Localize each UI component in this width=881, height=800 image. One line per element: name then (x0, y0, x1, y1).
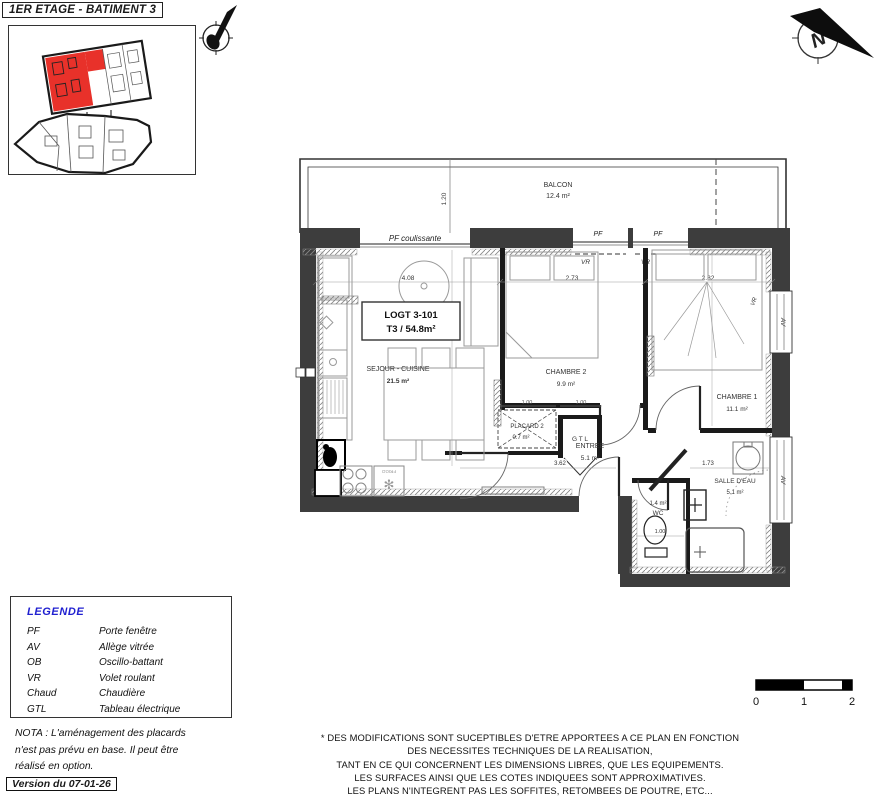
dim-chambre2: 2.73 (566, 275, 579, 282)
scale-bar: 0 1 2 (748, 674, 860, 710)
entree-label: ENTREE (576, 443, 605, 450)
nota-line: NOTA : L'aménagement des placards (15, 726, 230, 743)
floor-plan-page: { "header": { "title": "1ER ETAGE - BATI… (0, 0, 881, 800)
scale-1: 1 (801, 696, 807, 708)
legend-label: Oscillo-battant (99, 657, 163, 668)
dim-balcon-depth: 1.20 (441, 192, 448, 205)
sofa (464, 258, 498, 346)
av1-label: AV (779, 317, 786, 327)
chambre1-label: CHAMBRE 1 (717, 394, 758, 401)
dining-table (384, 348, 484, 460)
unit-type-area: T3 / 54.8m² (386, 324, 435, 335)
washbasin (733, 442, 763, 474)
dim-sejour: 4.08 (402, 275, 415, 282)
frigo-label: FRIGO (381, 469, 396, 474)
kitchen-unit (315, 470, 341, 496)
dim-wc: 1.00 (655, 529, 666, 535)
nota-line: réalisé en option. (15, 759, 230, 776)
legend-row-pf: PF Porte fenêtre (27, 626, 231, 637)
entree-area: 5.1 m² (581, 455, 600, 462)
placard-label: PLACARD 2 (510, 424, 544, 430)
legend: LEGENDE PF Porte fenêtre AV Allège vitré… (10, 596, 232, 718)
disclaimer-line: DES NECESSITES TECHNIQUES DE LA REALISAT… (250, 744, 810, 757)
legend-abbr: PF (27, 626, 99, 637)
minimap-drawing (9, 26, 195, 174)
disclaimer-line: TANT EN CE QUI CONCERNENT LES DIMENSIONS… (250, 758, 810, 771)
svg-text:✻: ✻ (384, 477, 395, 492)
salle-eau-label: SALLE D'EAU (714, 478, 756, 485)
gtl-label: G T L (572, 436, 588, 443)
small-compass-icon (192, 0, 248, 58)
pf2-label: PF (654, 231, 664, 238)
legend-abbr: GTL (27, 704, 99, 715)
wc-label: WC (653, 510, 664, 517)
legend-abbr: Chaud (27, 688, 99, 699)
legend-abbr: OB (27, 657, 99, 668)
north-arrow-icon: N (786, 2, 878, 70)
sejour-label: SEJOUR - CUISINE (366, 366, 429, 373)
disclaimer-line: LES PLANS N'INTEGRENT PAS LES SOFFITES, … (250, 784, 810, 797)
shower (686, 528, 744, 572)
unit-label-box: LOGT 3-101 T3 / 54.8m² (362, 302, 460, 340)
nota-note: NOTA : L'aménagement des placards n'est … (15, 726, 230, 776)
minimap-lower-building (15, 114, 151, 173)
window-pf-coulissante: PF coulissante (360, 234, 470, 247)
nota-line: n'est pas prévu en base. Il peut être (15, 743, 230, 760)
page-title: 1ER ETAGE - BATIMENT 3 (2, 2, 163, 18)
scale-2: 2 (849, 696, 855, 708)
legend-row-gtl: GTL Tableau électrique (27, 704, 231, 715)
sejour-area: 21.5 m² (387, 378, 410, 385)
legend-row-chaud: Chaud Chaudière (27, 688, 231, 699)
balcony: BALCON 12.4 m² 1.20 (300, 159, 786, 233)
salle-eau-area: 5.1 m² (726, 490, 743, 496)
window-pf-2: PF VR (633, 231, 688, 266)
legend-abbr: VR (27, 673, 99, 684)
minimap-highlighted-unit (45, 52, 93, 112)
window-av-1: AV VR (750, 291, 792, 353)
legend-abbr: AV (27, 642, 99, 653)
disclaimer: * DES MODIFICATIONS SONT SUCEPTIBLES D'E… (250, 731, 810, 798)
bed-chambre2 (506, 252, 598, 358)
legend-label: Volet roulant (99, 673, 155, 684)
dim-entree: 3.62 (554, 461, 566, 467)
disclaimer-line: * DES MODIFICATIONS SONT SUCEPTIBLES D'E… (250, 731, 810, 744)
legend-label: Chaudière (99, 688, 145, 699)
bed-chambre1 (652, 250, 762, 370)
legend-label: Allège vitrée (99, 642, 154, 653)
legend-label: Porte fenêtre (99, 626, 157, 637)
vr1-label: VR (581, 259, 590, 266)
dim-placard: 1.00 (522, 400, 533, 406)
pf-coulissante-label: PF coulissante (389, 234, 442, 243)
legend-row-av: AV Allège vitrée (27, 642, 231, 653)
wc-area: 1.4 m² (649, 501, 666, 507)
minimap-upper-building (43, 41, 151, 114)
chambre1-area: 11.1 m² (726, 406, 748, 413)
window-pf-1: PF VR (573, 231, 628, 266)
balcon-label: BALCON (544, 182, 573, 189)
legend-label: Tableau électrique (99, 704, 180, 715)
legend-row-vr: VR Volet roulant (27, 673, 231, 684)
legend-title: LEGENDE (27, 606, 231, 618)
av2-label: AV (779, 475, 786, 485)
placard-area: 0.7 m² (512, 435, 529, 441)
unit-number: LOGT 3-101 (384, 310, 438, 321)
toilet (644, 516, 667, 557)
pf1-label: PF (594, 231, 604, 238)
version-stamp: Version du 07-01-26 (6, 777, 117, 791)
disclaimer-line: LES SURFACES AINSI QUE LES COTES INDIQUE… (250, 771, 810, 784)
chambre2-label: CHAMBRE 2 (546, 369, 587, 376)
vr3-label: VR (750, 296, 759, 307)
apartment-plan: BALCON 12.4 m² 1.20 PF coulissante PF (295, 150, 795, 595)
location-minimap (8, 25, 196, 175)
scale-0: 0 (753, 696, 759, 708)
balcon-area: 12.4 m² (546, 193, 570, 200)
legend-row-ob: OB Oscillo-battant (27, 657, 231, 668)
dim-salle-eau: 1.73 (702, 461, 714, 467)
dim-gtl: 1.00 (576, 400, 587, 406)
wall-insulation-hatch (303, 249, 785, 573)
chambre2-area: 9.9 m² (557, 381, 576, 388)
